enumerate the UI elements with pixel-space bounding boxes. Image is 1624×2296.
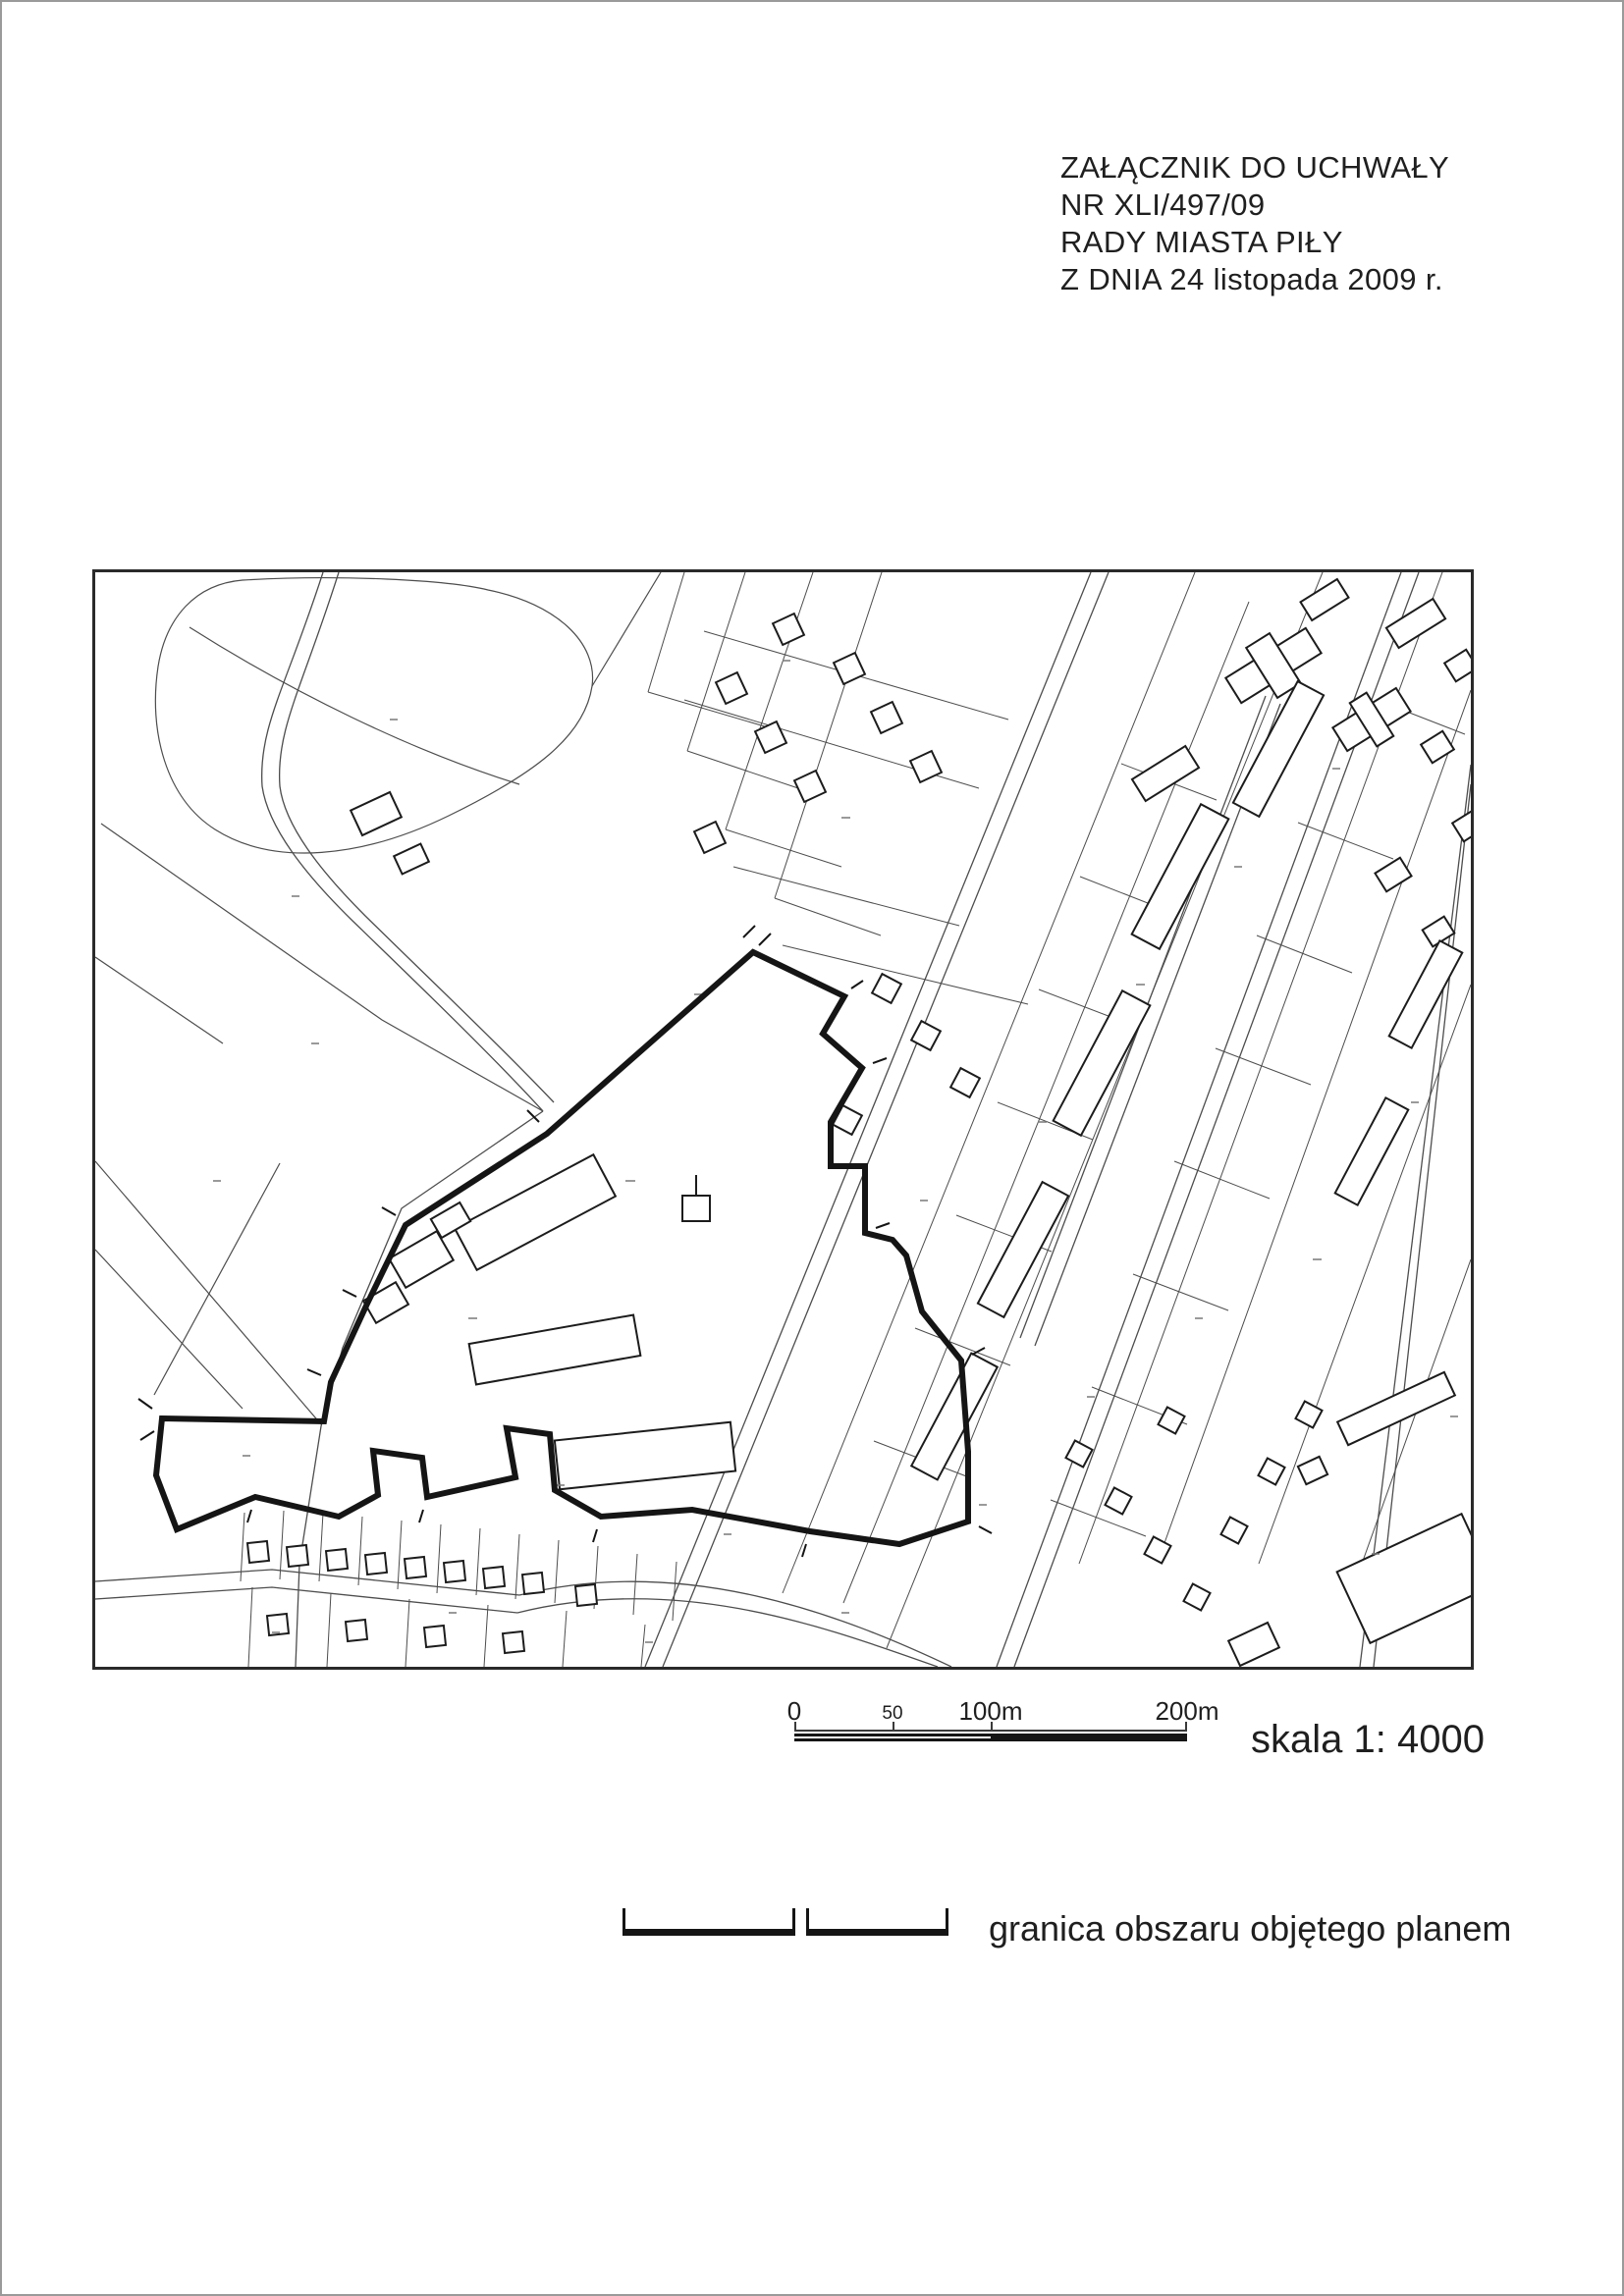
- scale-bar-tick: [1185, 1722, 1187, 1731]
- scale-bar-tick: [991, 1722, 993, 1731]
- document-page: ZAŁĄCZNIK DO UCHWAŁY NR XLI/497/09 RADY …: [0, 0, 1624, 2296]
- cadastral-map: [92, 569, 1474, 1670]
- parcel-number-marks: [213, 661, 1458, 1642]
- boundary-symbol-segment: [623, 1908, 795, 1936]
- title-line-2: NR XLI/497/09: [1060, 187, 1512, 224]
- map-drawing: [95, 572, 1471, 1667]
- title-line-4: Z DNIA 24 listopada 2009 r.: [1060, 261, 1512, 298]
- title-line-3: RADY MIASTA PIŁY: [1060, 224, 1512, 261]
- title-block: ZAŁĄCZNIK DO UCHWAŁY NR XLI/497/09 RADY …: [1060, 149, 1512, 298]
- scale-bar: 0 50 100m 200m: [794, 1696, 1187, 1747]
- legend-label: granica obszaru objętego planem: [989, 1908, 1511, 1949]
- scale-ratio-label: skala 1: 4000: [1251, 1718, 1485, 1762]
- scale-bar-tick: [893, 1722, 894, 1731]
- scale-bar-tick: [794, 1722, 796, 1731]
- title-line-1: ZAŁĄCZNIK DO UCHWAŁY: [1060, 149, 1512, 187]
- plan-boundary-symbol: [623, 1908, 948, 1936]
- scale-bar-segment-solid: [991, 1734, 1187, 1741]
- scale-tick-label: 200m: [1155, 1696, 1218, 1727]
- boundary-symbol-segment: [806, 1908, 948, 1936]
- buildings: [247, 579, 1471, 1666]
- scale-bar-segment-hollow: [794, 1734, 991, 1741]
